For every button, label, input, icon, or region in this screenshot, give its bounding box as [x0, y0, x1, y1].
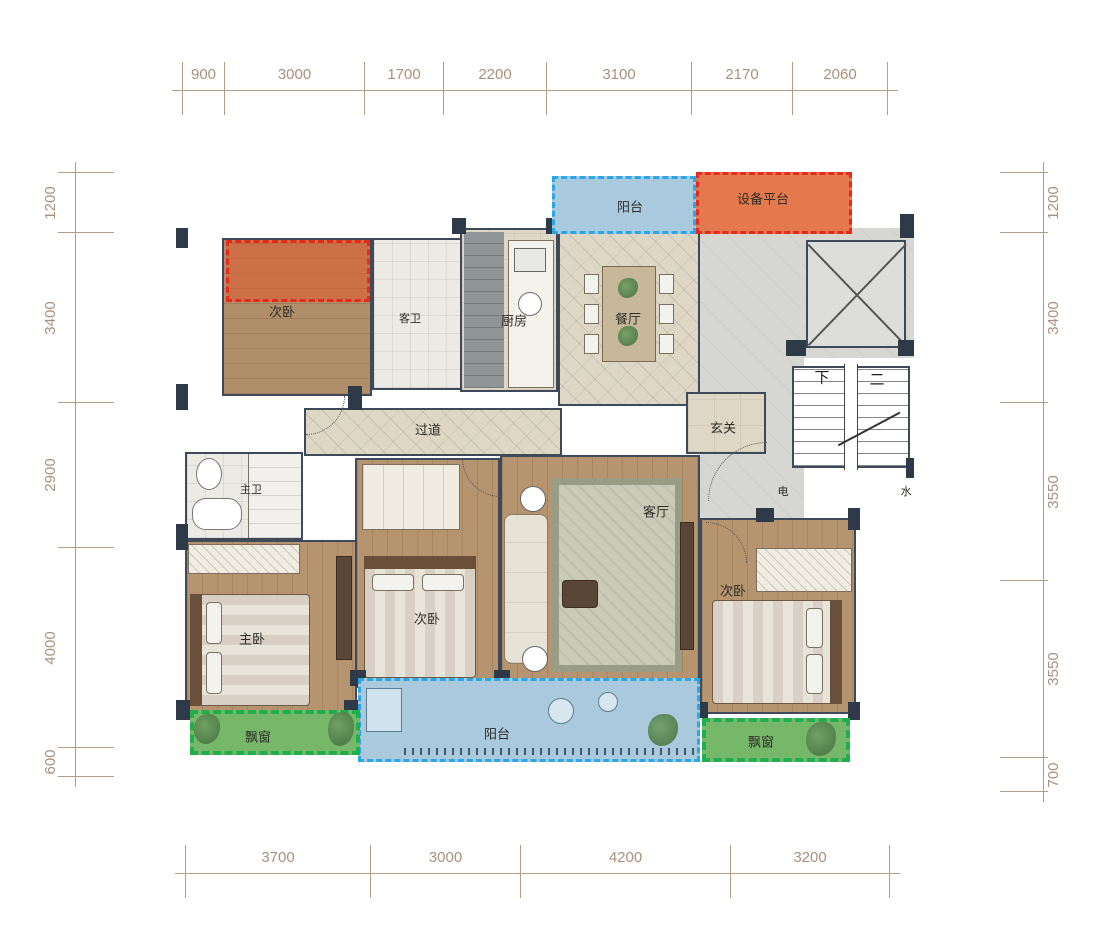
dim-value: 2060 — [823, 66, 856, 83]
master-wardrobe — [188, 544, 300, 574]
wall-column — [452, 218, 466, 234]
dim-value: 1200 — [42, 186, 59, 219]
floor-plan-canvas: 900 3000 1700 2200 3100 2170 2060 3700 3… — [0, 0, 1099, 927]
dim-segment: 3200 — [730, 845, 890, 898]
dimension-chain-left: 1200 3400 2900 4000 600 — [58, 172, 114, 777]
dim-segment: 1700 — [364, 62, 443, 115]
wall-column — [900, 214, 914, 238]
dim-segment: 1200 — [1000, 172, 1048, 232]
wall-column — [898, 340, 914, 356]
tv-cabinet — [680, 522, 694, 650]
label-shaft-electric: 电 — [778, 483, 789, 499]
label-balcony-bottom: 阳台 — [484, 724, 510, 743]
washing-machine — [366, 688, 402, 732]
dim-segment: 2900 — [58, 402, 114, 547]
dim-value: 700 — [1045, 762, 1062, 787]
dim-segment: 4200 — [520, 845, 730, 898]
dim-value: 3700 — [261, 849, 294, 866]
dim-value: 1200 — [1045, 186, 1062, 219]
middle-wardrobe — [362, 464, 460, 530]
wall-column — [176, 700, 190, 720]
wall-column — [786, 340, 806, 356]
master-bed-headboard — [190, 594, 202, 706]
dimension-chain-right: 1200 3400 3550 3550 700 — [1000, 172, 1048, 792]
right-wardrobe — [756, 548, 852, 592]
label-dining: 餐厅 — [615, 309, 641, 328]
dining-chair — [584, 304, 599, 324]
kitchen-gray-floor — [464, 232, 504, 388]
right-bed-headboard — [830, 600, 842, 704]
dining-chair — [659, 304, 674, 324]
wall-column — [176, 524, 188, 550]
dim-segment: 3550 — [1000, 580, 1048, 757]
dim-value: 2900 — [42, 458, 59, 491]
master-dresser — [336, 556, 352, 660]
dim-segment: 3100 — [546, 62, 691, 115]
dim-segment: 3550 — [1000, 402, 1048, 580]
dim-segment: 3400 — [58, 232, 114, 402]
dining-chair — [659, 334, 674, 354]
staircase — [792, 366, 910, 468]
dim-segment: 3000 — [224, 62, 364, 115]
elevator-shaft — [806, 240, 906, 348]
dim-segment: 4000 — [58, 547, 114, 747]
dim-value: 3100 — [602, 66, 635, 83]
label-kitchen: 厨房 — [501, 311, 527, 330]
label-guest-bath: 客卫 — [399, 310, 421, 326]
sofa — [504, 514, 548, 664]
dim-value: 2170 — [725, 66, 758, 83]
pillow — [372, 574, 414, 591]
dim-value: 3550 — [1045, 652, 1062, 685]
dim-value: 3000 — [429, 849, 462, 866]
coffee-table — [562, 580, 598, 608]
wall-column — [176, 228, 188, 248]
dim-segment: 700 — [1000, 757, 1048, 792]
wall-column — [848, 508, 860, 530]
toilet — [196, 458, 222, 490]
dim-value: 3000 — [278, 66, 311, 83]
dim-segment: 900 — [182, 62, 224, 115]
balcony-table — [548, 698, 574, 724]
label-living-room: 客厅 — [643, 502, 669, 521]
label-bedroom-right: 次卧 — [720, 581, 746, 600]
dimension-chain-top: 900 3000 1700 2200 3100 2170 2060 — [182, 62, 888, 115]
kitchen-stove — [514, 248, 546, 272]
label-shaft-water: 水 — [901, 483, 912, 499]
label-bedroom-top-left: 次卧 — [269, 302, 295, 321]
label-stairs-down: 下 — [814, 367, 829, 388]
wall-column — [906, 458, 914, 478]
dim-value: 3200 — [793, 849, 826, 866]
dim-segment: 2170 — [691, 62, 792, 115]
label-bedroom-middle: 次卧 — [414, 609, 440, 628]
label-hallway: 过道 — [415, 420, 441, 439]
stair-divider — [844, 364, 858, 470]
bedroom-red-zone — [226, 240, 370, 302]
dim-segment: 3400 — [1000, 232, 1048, 402]
label-bay-window-right: 飘窗 — [748, 732, 774, 751]
pillow — [206, 602, 222, 644]
dim-value: 3400 — [42, 301, 59, 334]
dim-value: 4000 — [42, 631, 59, 664]
dining-chair — [659, 274, 674, 294]
dim-segment: 2200 — [443, 62, 546, 115]
dimension-chain-bottom: 3700 3000 4200 3200 — [185, 845, 890, 898]
dim-segment: 1200 — [58, 172, 114, 232]
dim-segment: 3700 — [185, 845, 370, 898]
wall-column — [756, 508, 774, 522]
pillow — [206, 652, 222, 694]
pillow — [806, 608, 823, 648]
dim-value: 1700 — [387, 66, 420, 83]
dim-segment: 3000 — [370, 845, 520, 898]
ceiling-lamp — [522, 646, 548, 672]
label-foyer: 玄关 — [710, 418, 736, 437]
label-master-bath: 主卫 — [240, 481, 262, 497]
dining-chair — [584, 274, 599, 294]
dim-segment: 2060 — [792, 62, 888, 115]
label-master-bedroom: 主卧 — [239, 629, 265, 648]
ceiling-lamp — [520, 486, 546, 512]
pillow — [806, 654, 823, 694]
dim-value: 3550 — [1045, 475, 1062, 508]
dim-value: 600 — [42, 749, 59, 774]
dim-value: 2200 — [478, 66, 511, 83]
dim-value: 4200 — [609, 849, 642, 866]
wall-column — [176, 384, 188, 410]
label-balcony-top: 阳台 — [617, 197, 643, 216]
balcony-railing — [404, 748, 694, 755]
label-stairs-up: 二 — [869, 369, 884, 390]
balcony-table — [598, 692, 618, 712]
pillow — [422, 574, 464, 591]
label-bay-window-left: 飘窗 — [245, 727, 271, 746]
dim-value: 900 — [191, 66, 216, 83]
label-equipment-platform: 设备平台 — [737, 189, 789, 208]
dim-segment: 600 — [58, 747, 114, 777]
bathtub — [192, 498, 242, 530]
wall-column — [348, 386, 362, 410]
dining-chair — [584, 334, 599, 354]
dim-value: 3400 — [1045, 301, 1062, 334]
middle-bed-headboard — [364, 556, 476, 569]
